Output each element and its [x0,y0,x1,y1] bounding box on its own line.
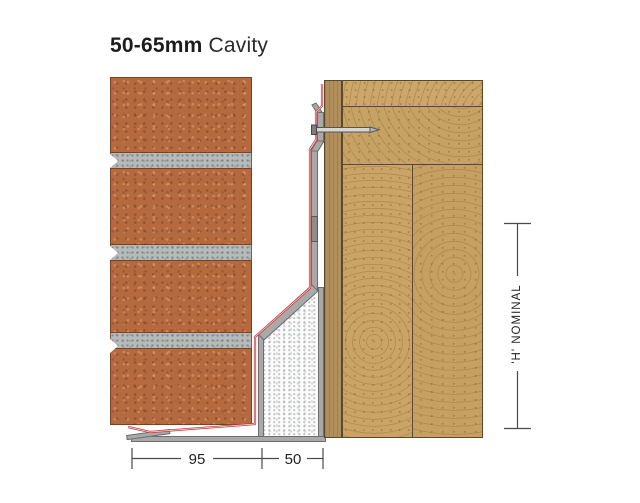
dimension-lines-vertical [504,224,531,429]
diagram-title: 50-65mm Cavity [110,34,268,58]
screw-head [312,125,317,135]
timber-stud-left [342,164,413,438]
title-cavity-range: 50-65mm [110,34,202,57]
timber-header-plate [342,106,483,165]
mortar-notch [109,338,118,354]
lintel-bottom-plate [131,436,326,442]
brick-course [110,260,252,333]
title-cavity-word: Cavity [202,34,268,57]
mortar-joint [110,153,252,168]
lintel-upper-flange [317,112,324,143]
mortar-notch [109,153,118,169]
lintel-detail-diagram: 50-65mm Cavity [0,0,640,503]
brick-outer-leaf [110,77,252,425]
dim-label-nominal-height: 'H' NOMINAL [511,284,523,363]
brick-course [110,77,252,153]
mortar-joint [110,333,252,348]
mortar-notch [109,245,118,261]
lintel-front-face [258,334,264,438]
dim-label-brick-leaf: 95 [189,451,206,468]
lintel-insulation [258,289,323,438]
dim-label-cavity: 50 [285,451,302,468]
brick-course [110,348,252,425]
timber-stud-right [412,164,483,438]
brick-course [110,168,252,245]
lintel-fixing-strap [311,216,318,242]
timber-head-binder [342,80,483,107]
mortar-joint [110,245,252,260]
timber-sheathing-board [324,80,342,438]
dimension-lines-horizontal [132,448,323,469]
